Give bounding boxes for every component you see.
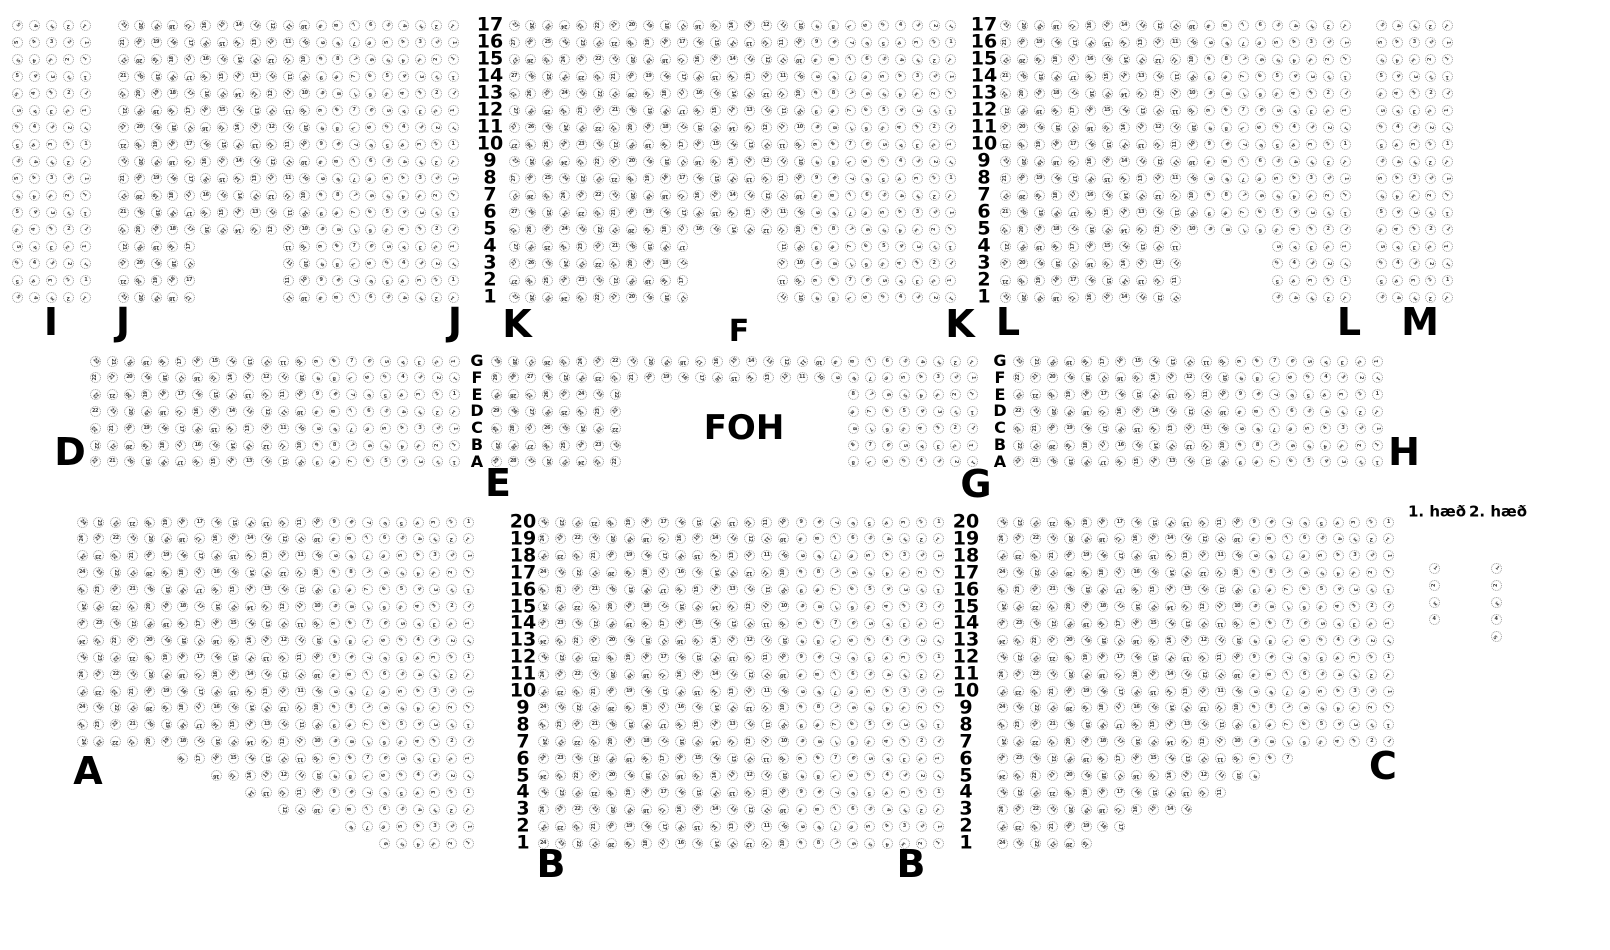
- seat[interactable]: 2: [446, 770, 457, 781]
- seat[interactable]: 9: [1204, 207, 1215, 218]
- seat[interactable]: 21: [627, 356, 638, 367]
- seat[interactable]: 17: [184, 88, 195, 99]
- seat[interactable]: 2: [446, 601, 457, 612]
- seat[interactable]: 12: [1153, 139, 1164, 150]
- seat[interactable]: 6: [1255, 20, 1266, 31]
- seat[interactable]: 8: [813, 584, 824, 595]
- seat[interactable]: 17: [184, 275, 195, 286]
- seat[interactable]: 2: [1425, 258, 1436, 269]
- seat[interactable]: 19: [661, 356, 672, 367]
- seat[interactable]: 5: [1376, 207, 1387, 218]
- seat[interactable]: 11: [283, 88, 294, 99]
- seat[interactable]: 18: [660, 88, 671, 99]
- seat[interactable]: 8: [813, 719, 824, 730]
- seat[interactable]: 20: [606, 753, 617, 764]
- seat[interactable]: 18: [177, 719, 188, 730]
- seat[interactable]: 7: [830, 550, 841, 561]
- seat[interactable]: 12: [278, 787, 289, 798]
- seat[interactable]: 13: [250, 105, 261, 116]
- seat[interactable]: 16: [675, 736, 686, 747]
- seat[interactable]: 8: [1221, 88, 1232, 99]
- seat[interactable]: 13: [744, 190, 755, 201]
- seat[interactable]: 15: [692, 550, 703, 561]
- seat[interactable]: 16: [675, 533, 686, 544]
- seat[interactable]: 19: [1064, 456, 1075, 467]
- seat[interactable]: 6: [1286, 456, 1297, 467]
- seat[interactable]: 4: [1320, 389, 1331, 400]
- seat[interactable]: 3: [912, 88, 923, 99]
- seat[interactable]: 16: [1085, 122, 1096, 133]
- seat[interactable]: 14: [710, 652, 721, 663]
- seat[interactable]: 14: [233, 173, 244, 184]
- seat[interactable]: 26: [542, 372, 553, 383]
- seat[interactable]: 26: [525, 105, 536, 116]
- seat[interactable]: 18: [167, 122, 178, 133]
- seat[interactable]: 14: [710, 719, 721, 730]
- seat[interactable]: 6: [365, 173, 376, 184]
- seat[interactable]: 26: [525, 241, 536, 252]
- seat[interactable]: 4: [895, 37, 906, 48]
- seat[interactable]: 25: [542, 156, 553, 167]
- seat[interactable]: 11: [761, 686, 772, 697]
- seat[interactable]: 2: [446, 719, 457, 730]
- seat[interactable]: 4: [29, 241, 40, 252]
- seat[interactable]: 21: [1000, 20, 1011, 31]
- seat[interactable]: 20: [134, 173, 145, 184]
- seat[interactable]: 3: [1409, 173, 1420, 184]
- seat[interactable]: 6: [1255, 207, 1266, 218]
- seat[interactable]: 15: [1102, 292, 1113, 303]
- seat[interactable]: 5: [1272, 37, 1283, 48]
- seat[interactable]: 7: [1269, 423, 1280, 434]
- seat[interactable]: 2: [431, 207, 442, 218]
- seat[interactable]: 26: [525, 190, 536, 201]
- seat[interactable]: 18: [167, 20, 178, 31]
- seat[interactable]: 27: [509, 20, 520, 31]
- seat[interactable]: 12: [278, 517, 289, 528]
- seat[interactable]: 5: [1376, 275, 1387, 286]
- seat[interactable]: 12: [278, 804, 289, 815]
- seat[interactable]: 2: [63, 37, 74, 48]
- seat[interactable]: 8: [332, 105, 343, 116]
- seat[interactable]: 19: [161, 517, 172, 528]
- seat[interactable]: 4: [1289, 173, 1300, 184]
- seat[interactable]: 10: [295, 389, 306, 400]
- seat[interactable]: 13: [727, 635, 738, 646]
- seat[interactable]: 17: [184, 292, 195, 303]
- seat[interactable]: 15: [1132, 456, 1143, 467]
- seat[interactable]: 13: [243, 423, 254, 434]
- seat[interactable]: 7: [349, 275, 360, 286]
- seat[interactable]: 24: [77, 567, 88, 578]
- seat[interactable]: 2: [431, 190, 442, 201]
- seat[interactable]: 21: [118, 156, 129, 167]
- seat[interactable]: 20: [626, 156, 637, 167]
- seat[interactable]: 15: [209, 389, 220, 400]
- seat[interactable]: 24: [538, 533, 549, 544]
- seat[interactable]: 13: [1136, 122, 1147, 133]
- seat[interactable]: 2: [446, 635, 457, 646]
- seat[interactable]: 4: [398, 122, 409, 133]
- seat[interactable]: 20: [134, 37, 145, 48]
- seat[interactable]: 4: [29, 224, 40, 235]
- seat[interactable]: 11: [1170, 258, 1181, 269]
- seat[interactable]: 14: [1119, 37, 1130, 48]
- seat[interactable]: 21: [1000, 224, 1011, 235]
- seat[interactable]: 27: [509, 156, 520, 167]
- seat[interactable]: 4: [895, 258, 906, 269]
- seat[interactable]: 10: [1187, 105, 1198, 116]
- seat[interactable]: 13: [1166, 440, 1177, 451]
- seat[interactable]: 6: [379, 550, 390, 561]
- seat[interactable]: 7: [845, 275, 856, 286]
- seat[interactable]: 4: [398, 20, 409, 31]
- seat[interactable]: 2: [1323, 224, 1334, 235]
- seat[interactable]: 6: [847, 652, 858, 663]
- seat[interactable]: 21: [107, 389, 118, 400]
- seat[interactable]: 17: [194, 719, 205, 730]
- seat[interactable]: 3: [46, 37, 57, 48]
- seat[interactable]: 16: [211, 702, 222, 713]
- seat[interactable]: 3: [912, 190, 923, 201]
- seat[interactable]: 8: [813, 686, 824, 697]
- seat[interactable]: 16: [1115, 356, 1126, 367]
- seat[interactable]: 1: [933, 736, 944, 747]
- seat[interactable]: 9: [329, 601, 340, 612]
- seat[interactable]: 11: [278, 389, 289, 400]
- seat[interactable]: 13: [744, 139, 755, 150]
- seat[interactable]: 5: [899, 423, 910, 434]
- seat[interactable]: 16: [1085, 207, 1096, 218]
- seat[interactable]: 15: [729, 372, 740, 383]
- seat[interactable]: 7: [830, 702, 841, 713]
- seat[interactable]: 21: [609, 54, 620, 65]
- seat[interactable]: 12: [744, 517, 755, 528]
- seat[interactable]: 2: [1355, 389, 1366, 400]
- seat[interactable]: 4: [397, 423, 408, 434]
- seat[interactable]: 16: [211, 686, 222, 697]
- seat[interactable]: 11: [777, 207, 788, 218]
- seat[interactable]: 27: [525, 456, 536, 467]
- seat[interactable]: 5: [878, 224, 889, 235]
- seat[interactable]: 24: [576, 356, 587, 367]
- seat[interactable]: 25: [542, 224, 553, 235]
- seat[interactable]: 2: [929, 190, 940, 201]
- seat[interactable]: 21: [118, 71, 129, 82]
- seat[interactable]: 6: [379, 618, 390, 629]
- seat[interactable]: 20: [134, 275, 145, 286]
- seat[interactable]: 7: [830, 533, 841, 544]
- seat[interactable]: 17: [1068, 122, 1079, 133]
- seat[interactable]: 6: [379, 736, 390, 747]
- seat[interactable]: 19: [151, 241, 162, 252]
- seat[interactable]: 11: [1170, 207, 1181, 218]
- seat[interactable]: 9: [329, 584, 340, 595]
- seat[interactable]: 12: [278, 567, 289, 578]
- seat[interactable]: 13: [727, 719, 738, 730]
- seat[interactable]: 20: [606, 635, 617, 646]
- seat[interactable]: 20: [144, 719, 155, 730]
- seat[interactable]: 3: [1306, 105, 1317, 116]
- seat[interactable]: 10: [1218, 423, 1229, 434]
- seat[interactable]: 7: [1269, 372, 1280, 383]
- seat[interactable]: 6: [1286, 406, 1297, 417]
- seat[interactable]: 5: [864, 550, 875, 561]
- seat[interactable]: 9: [329, 719, 340, 730]
- seat[interactable]: 23: [555, 719, 566, 730]
- seat[interactable]: 9: [811, 37, 822, 48]
- seat[interactable]: 11: [1201, 372, 1212, 383]
- seat[interactable]: 6: [861, 207, 872, 218]
- seat[interactable]: 9: [796, 584, 807, 595]
- seat[interactable]: 19: [141, 423, 152, 434]
- seat[interactable]: 10: [778, 753, 789, 764]
- seat[interactable]: 16: [1115, 423, 1126, 434]
- seat[interactable]: 1: [945, 258, 956, 269]
- seat[interactable]: 23: [555, 753, 566, 764]
- seat[interactable]: 2: [1425, 173, 1436, 184]
- seat[interactable]: 1: [1340, 156, 1351, 167]
- seat[interactable]: 8: [332, 71, 343, 82]
- seat[interactable]: 12: [1184, 389, 1195, 400]
- seat[interactable]: 17: [194, 635, 205, 646]
- seat[interactable]: 4: [398, 275, 409, 286]
- seat[interactable]: 22: [90, 389, 101, 400]
- seat[interactable]: 9: [312, 440, 323, 451]
- seat[interactable]: 4: [1392, 105, 1403, 116]
- seat[interactable]: 20: [1047, 389, 1058, 400]
- seat[interactable]: 22: [90, 440, 101, 451]
- seat[interactable]: 8: [813, 550, 824, 561]
- seat[interactable]: 22: [110, 618, 121, 629]
- seat[interactable]: 22: [110, 669, 121, 680]
- seat[interactable]: 6: [882, 423, 893, 434]
- seat[interactable]: 1: [933, 550, 944, 561]
- seat[interactable]: 17: [194, 517, 205, 528]
- seat[interactable]: 1: [967, 440, 978, 451]
- seat[interactable]: 1: [1340, 190, 1351, 201]
- seat[interactable]: 13: [261, 584, 272, 595]
- seat[interactable]: 2: [431, 173, 442, 184]
- seat[interactable]: 12: [278, 753, 289, 764]
- seat[interactable]: 19: [624, 736, 635, 747]
- seat[interactable]: 11: [283, 224, 294, 235]
- seat[interactable]: 7: [362, 753, 373, 764]
- seat[interactable]: 9: [811, 292, 822, 303]
- seat[interactable]: 12: [266, 88, 277, 99]
- seat[interactable]: 6: [847, 702, 858, 713]
- seat[interactable]: 18: [167, 173, 178, 184]
- seat[interactable]: 4: [413, 533, 424, 544]
- seat[interactable]: 1: [1442, 37, 1453, 48]
- seat[interactable]: 7: [349, 207, 360, 218]
- seat[interactable]: 23: [555, 635, 566, 646]
- seat[interactable]: 20: [1017, 20, 1028, 31]
- seat[interactable]: 16: [211, 669, 222, 680]
- seat[interactable]: 5: [864, 601, 875, 612]
- seat[interactable]: 23: [593, 389, 604, 400]
- seat[interactable]: 9: [329, 533, 340, 544]
- seat[interactable]: 5: [382, 173, 393, 184]
- seat[interactable]: 5: [864, 669, 875, 680]
- seat[interactable]: 4: [413, 652, 424, 663]
- seat[interactable]: 1: [448, 190, 459, 201]
- seat[interactable]: 8: [813, 702, 824, 713]
- seat[interactable]: 18: [1051, 20, 1062, 31]
- seat[interactable]: 10: [778, 686, 789, 697]
- seat[interactable]: 20: [124, 389, 135, 400]
- seat[interactable]: 17: [677, 241, 688, 252]
- seat[interactable]: 5: [1303, 423, 1314, 434]
- seat[interactable]: 28: [508, 406, 519, 417]
- seat[interactable]: 21: [118, 258, 129, 269]
- seat[interactable]: 5: [1272, 292, 1283, 303]
- seat[interactable]: 22: [110, 517, 121, 528]
- seat[interactable]: 5: [1272, 207, 1283, 218]
- seat[interactable]: 9: [811, 139, 822, 150]
- seat[interactable]: 21: [118, 37, 129, 48]
- seat[interactable]: 20: [626, 224, 637, 235]
- seat[interactable]: 3: [415, 156, 426, 167]
- seat[interactable]: 13: [744, 173, 755, 184]
- seat[interactable]: 1: [1442, 173, 1453, 184]
- seat[interactable]: 17: [658, 635, 669, 646]
- seat[interactable]: 28: [508, 356, 519, 367]
- seat[interactable]: 3: [1306, 122, 1317, 133]
- seat[interactable]: 18: [177, 652, 188, 663]
- seat[interactable]: 7: [845, 292, 856, 303]
- seat[interactable]: 17: [658, 669, 669, 680]
- seat[interactable]: 8: [848, 372, 859, 383]
- seat[interactable]: 2: [446, 821, 457, 832]
- seat[interactable]: 23: [555, 686, 566, 697]
- seat[interactable]: 3: [1409, 54, 1420, 65]
- seat[interactable]: 15: [692, 618, 703, 629]
- seat[interactable]: 12: [266, 37, 277, 48]
- seat[interactable]: 25: [559, 456, 570, 467]
- seat[interactable]: 4: [895, 190, 906, 201]
- seat[interactable]: 27: [509, 207, 520, 218]
- seat[interactable]: 1: [463, 804, 474, 815]
- seat[interactable]: 13: [1136, 156, 1147, 167]
- seat[interactable]: 16: [192, 406, 203, 417]
- seat[interactable]: 23: [555, 517, 566, 528]
- seat[interactable]: 7: [362, 584, 373, 595]
- seat[interactable]: 14: [710, 686, 721, 697]
- seat[interactable]: 3: [1306, 139, 1317, 150]
- seat[interactable]: 3: [933, 456, 944, 467]
- seat[interactable]: 9: [1235, 423, 1246, 434]
- seat[interactable]: 20: [124, 356, 135, 367]
- seat[interactable]: 4: [29, 88, 40, 99]
- seat[interactable]: 12: [744, 702, 755, 713]
- seat[interactable]: 18: [641, 601, 652, 612]
- seat[interactable]: 13: [243, 456, 254, 467]
- seat[interactable]: 23: [593, 372, 604, 383]
- seat[interactable]: 13: [727, 669, 738, 680]
- seat[interactable]: 10: [778, 652, 789, 663]
- seat[interactable]: 14: [727, 71, 738, 82]
- seat[interactable]: 16: [712, 356, 723, 367]
- seat[interactable]: 20: [1017, 241, 1028, 252]
- seat[interactable]: 3: [429, 804, 440, 815]
- seat[interactable]: 6: [847, 635, 858, 646]
- seat[interactable]: 14: [710, 601, 721, 612]
- seat[interactable]: 9: [312, 406, 323, 417]
- seat[interactable]: 12: [761, 190, 772, 201]
- seat[interactable]: 2: [1425, 224, 1436, 235]
- seat[interactable]: 13: [1136, 275, 1147, 286]
- seat[interactable]: 22: [110, 635, 121, 646]
- seat[interactable]: 19: [1034, 258, 1045, 269]
- seat[interactable]: 12: [1153, 54, 1164, 65]
- seat[interactable]: 3: [1409, 241, 1420, 252]
- seat[interactable]: 3: [429, 533, 440, 544]
- seat[interactable]: 9: [316, 71, 327, 82]
- seat[interactable]: 23: [93, 652, 104, 663]
- seat[interactable]: 5: [396, 567, 407, 578]
- seat[interactable]: 9: [811, 173, 822, 184]
- seat[interactable]: 19: [624, 550, 635, 561]
- seat[interactable]: 9: [329, 618, 340, 629]
- seat[interactable]: 21: [589, 517, 600, 528]
- seat[interactable]: 8: [1221, 54, 1232, 65]
- seat[interactable]: 22: [110, 533, 121, 544]
- seat[interactable]: 1: [449, 372, 460, 383]
- seat[interactable]: 6: [861, 71, 872, 82]
- seat[interactable]: 27: [525, 389, 536, 400]
- seat[interactable]: 12: [1153, 207, 1164, 218]
- seat[interactable]: 3: [429, 635, 440, 646]
- seat[interactable]: 6: [861, 156, 872, 167]
- seat[interactable]: 5: [396, 652, 407, 663]
- seat[interactable]: 21: [609, 37, 620, 48]
- seat[interactable]: 3: [429, 567, 440, 578]
- seat[interactable]: 21: [589, 635, 600, 646]
- seat[interactable]: 5: [878, 292, 889, 303]
- seat[interactable]: 5: [878, 54, 889, 65]
- seat[interactable]: 4: [1289, 122, 1300, 133]
- seat[interactable]: 15: [1132, 356, 1143, 367]
- seat[interactable]: 12: [1184, 356, 1195, 367]
- seat[interactable]: 1: [448, 224, 459, 235]
- seat[interactable]: 15: [228, 736, 239, 747]
- seat[interactable]: 3: [429, 702, 440, 713]
- seat[interactable]: 8: [813, 652, 824, 663]
- seat[interactable]: 19: [161, 669, 172, 680]
- seat[interactable]: 6: [365, 88, 376, 99]
- seat[interactable]: 7: [1269, 356, 1280, 367]
- seat[interactable]: 1: [945, 241, 956, 252]
- seat[interactable]: 21: [1030, 389, 1041, 400]
- seat[interactable]: 1: [1442, 139, 1453, 150]
- seat[interactable]: 19: [1034, 224, 1045, 235]
- seat[interactable]: 12: [761, 122, 772, 133]
- seat[interactable]: 10: [778, 533, 789, 544]
- seat[interactable]: 18: [167, 37, 178, 48]
- seat[interactable]: 5: [12, 37, 23, 48]
- seat[interactable]: 25: [559, 372, 570, 383]
- seat[interactable]: 4: [29, 156, 40, 167]
- seat[interactable]: 11: [295, 550, 306, 561]
- seat[interactable]: 6: [1255, 139, 1266, 150]
- seat[interactable]: 13: [250, 88, 261, 99]
- seat[interactable]: 1: [463, 550, 474, 561]
- seat[interactable]: 9: [796, 635, 807, 646]
- seat[interactable]: 19: [624, 584, 635, 595]
- seat[interactable]: 8: [828, 258, 839, 269]
- seat[interactable]: 1: [463, 601, 474, 612]
